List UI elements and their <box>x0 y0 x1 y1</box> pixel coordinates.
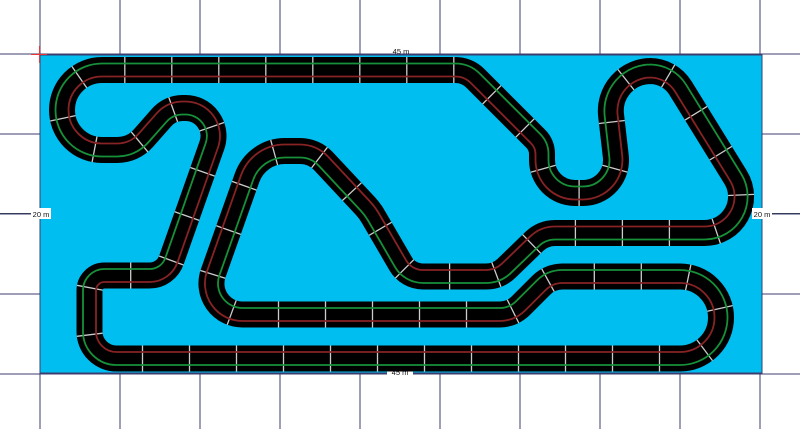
svg-text:20 m: 20 m <box>33 210 50 219</box>
svg-text:45 m: 45 m <box>393 47 410 56</box>
svg-text:20 m: 20 m <box>754 210 771 219</box>
